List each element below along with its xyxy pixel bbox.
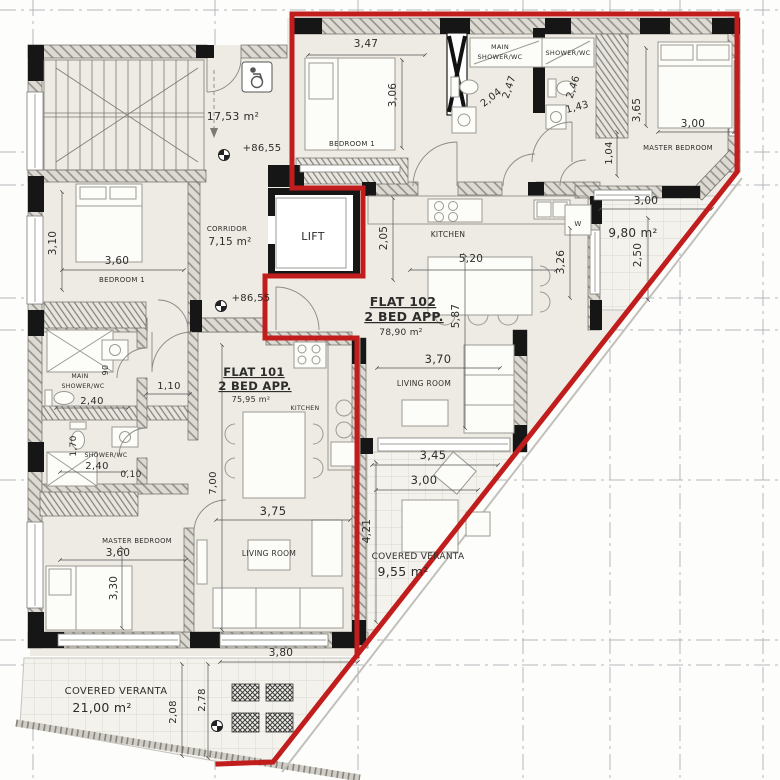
dim: 7,00	[208, 471, 219, 494]
f101-shower: SHOWER/WC	[84, 452, 127, 459]
flat102-area: 78,90 m²	[379, 328, 422, 338]
level-mark-top: +86,55	[243, 143, 282, 154]
toilet-f101-main	[54, 392, 74, 405]
lift-label: LIFT	[301, 230, 324, 243]
wheelchair-icon	[242, 62, 272, 92]
flat102-type: 2 BED APP.	[364, 309, 443, 324]
flat102-name: FLAT 102	[370, 294, 437, 309]
floor-plan-drawing: 17,53 m²+86,55CORRIDOR7,15 m²+86,55LIFT3…	[0, 0, 780, 780]
dim: 2,08	[168, 700, 179, 723]
level-marker	[219, 150, 230, 161]
dim: 3,26	[555, 250, 567, 275]
dim: 1,04	[604, 141, 615, 164]
f101-kitchen: KITCHEN	[291, 405, 320, 412]
f101-main-shower-2: SHOWER/WC	[61, 383, 104, 390]
basin-f102-main	[452, 107, 476, 133]
veranda-955-area: 9,55 m²	[377, 564, 428, 579]
dim: 3,00	[634, 195, 659, 207]
wardrobe-f101-master	[40, 492, 138, 516]
f101-main-shower-1: MAIN	[71, 373, 88, 380]
tv-unit-f101	[197, 540, 207, 584]
dim: 5,87	[450, 304, 462, 329]
sofa-veranda955	[402, 500, 458, 552]
dim: 2,40	[80, 396, 103, 407]
sofa-f102	[464, 345, 514, 433]
veranda-chair	[232, 713, 259, 732]
dim: 3,00	[411, 473, 438, 487]
dim: 3,10	[47, 231, 59, 256]
dim: 3,60	[105, 255, 130, 267]
dim: 3,80	[269, 647, 294, 659]
dim: 3,47	[354, 38, 379, 50]
corridor-label: CORRIDOR	[207, 225, 247, 233]
veranda-chair	[232, 684, 259, 701]
f102-living-room: LIVING ROOM	[397, 379, 451, 388]
fridge-f101	[331, 442, 357, 466]
floor-plan-sheet: 17,53 m²+86,55CORRIDOR7,15 m²+86,55LIFT3…	[0, 0, 780, 780]
veranda-21-area: 21,00 m²	[72, 700, 131, 715]
dim: 3,30	[108, 576, 120, 601]
dim: 2,05	[378, 226, 390, 251]
wardrobe-f101-bedroom1	[44, 302, 146, 328]
f102-kitchen: KITCHEN	[431, 230, 466, 239]
veranda-chair	[266, 684, 293, 701]
dim: 3,45	[420, 448, 447, 462]
dim: 4,21	[361, 519, 373, 544]
island-f102	[428, 257, 532, 315]
wardrobe-f102-master	[596, 34, 628, 138]
boiler: W	[574, 220, 581, 228]
dim: 2,78	[197, 688, 208, 711]
f101-master-bedroom: MASTER BEDROOM	[102, 537, 172, 545]
f101-living-room: LIVING ROOM	[242, 549, 296, 558]
level-marker	[212, 721, 223, 732]
veranda-21-label: COVERED VERANTA	[65, 686, 168, 697]
flat101-type: 2 BED APP.	[218, 379, 291, 393]
armchair-f101	[312, 520, 342, 576]
coffee-table-f102	[402, 400, 448, 426]
dim: 2,40	[85, 461, 108, 472]
dim: 3,70	[425, 352, 452, 366]
veranda-chair	[266, 713, 293, 732]
level-mark-corridor: +86,55	[232, 293, 271, 304]
dim: 1,10	[157, 381, 180, 392]
dim: 5,20	[459, 253, 484, 265]
dining-table-f101	[243, 412, 305, 498]
corridor-area: 7,15 m²	[208, 236, 251, 248]
dim: 3,06	[387, 83, 399, 108]
dim: 1,70	[69, 435, 79, 456]
dim: 3,00	[681, 118, 706, 130]
basin-f101	[112, 427, 138, 447]
dim: 3,75	[260, 504, 287, 518]
f102-shower: SHOWER/WC	[545, 49, 590, 57]
sofa-f101	[213, 588, 343, 628]
stairs-area: 17,53 m²	[207, 110, 260, 123]
veranda-980-area: 9,80 m²	[608, 226, 657, 240]
dim: 0,10	[120, 470, 141, 480]
toilet-f102-main	[460, 80, 478, 94]
f102-bedroom1: BEDROOM 1	[329, 140, 375, 148]
dim: 2,50	[632, 243, 644, 268]
veranda-955-label: COVERED VERANTA	[372, 552, 465, 562]
f102-master-bedroom: MASTER BEDROOM	[643, 144, 713, 152]
duct-shaft	[447, 33, 467, 115]
dim: 90	[101, 365, 110, 376]
toilet-tank	[451, 77, 459, 97]
dim: 3,60	[106, 547, 131, 559]
f102-main-shower-2: SHOWER/WC	[477, 53, 522, 61]
f101-bedroom1: BEDROOM 1	[99, 276, 145, 284]
basin-f101-main	[102, 340, 128, 360]
level-marker	[216, 301, 227, 312]
flat101-area: 75,95 m²	[232, 395, 271, 404]
flat101-name: FLAT 101	[223, 365, 284, 379]
f102-main-shower-1: MAIN	[491, 43, 509, 51]
dim: 3,65	[631, 98, 643, 123]
